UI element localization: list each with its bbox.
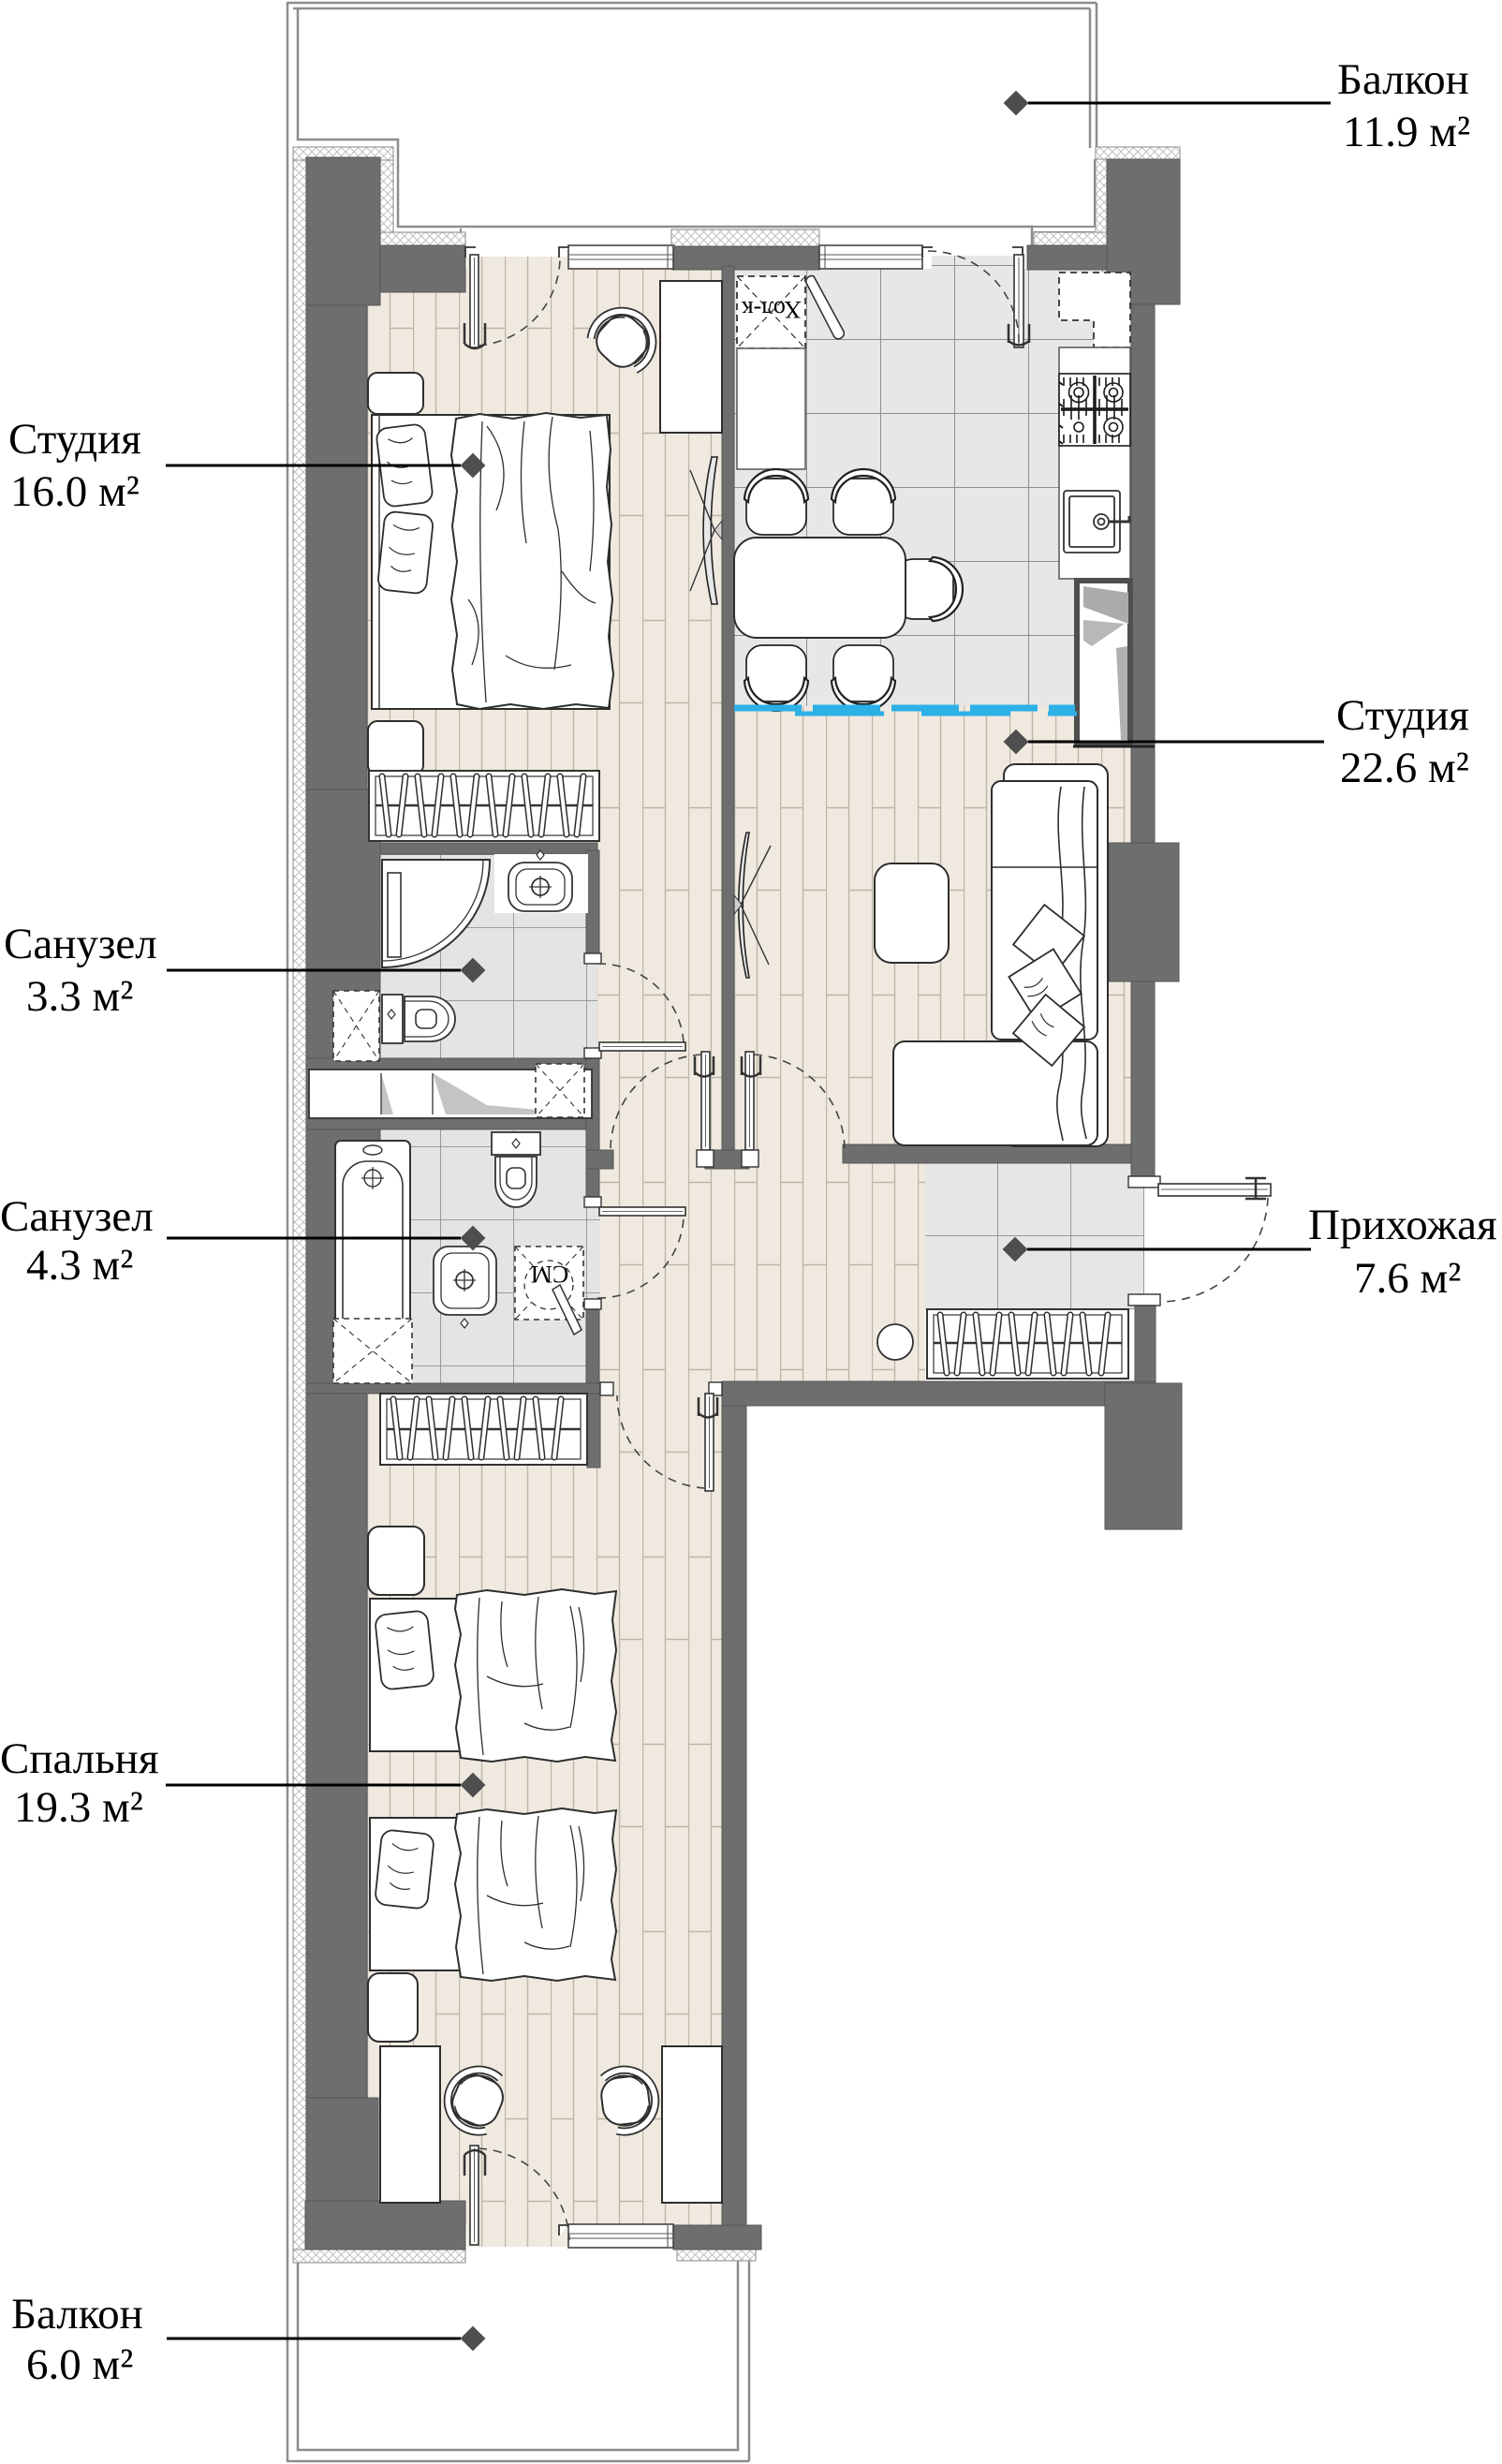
svg-text:Хол-к: Хол-к [742, 296, 802, 323]
svg-text:16.0 м²: 16.0 м² [10, 467, 140, 516]
svg-text:4.3 м²: 4.3 м² [26, 1241, 133, 1290]
svg-text:Балкон: Балкон [1337, 55, 1469, 104]
svg-text:19.3 м²: 19.3 м² [14, 1783, 143, 1832]
svg-text:Спальня: Спальня [0, 1734, 158, 1783]
svg-text:22.6 м²: 22.6 м² [1340, 744, 1469, 792]
svg-text:7.6 м²: 7.6 м² [1354, 1254, 1461, 1303]
svg-text:3.3 м²: 3.3 м² [26, 972, 133, 1021]
svg-text:СМ: СМ [531, 1261, 568, 1288]
svg-text:11.9 м²: 11.9 м² [1343, 108, 1470, 156]
svg-text:Студия: Студия [8, 415, 141, 464]
svg-text:Балкон: Балкон [11, 2290, 143, 2339]
svg-text:6.0 м²: 6.0 м² [26, 2340, 133, 2389]
svg-text:Санузел: Санузел [4, 920, 157, 968]
svg-text:Студия: Студия [1336, 691, 1469, 740]
svg-text:Санузел: Санузел [0, 1192, 154, 1241]
svg-text:Прихожая: Прихожая [1308, 1201, 1497, 1249]
